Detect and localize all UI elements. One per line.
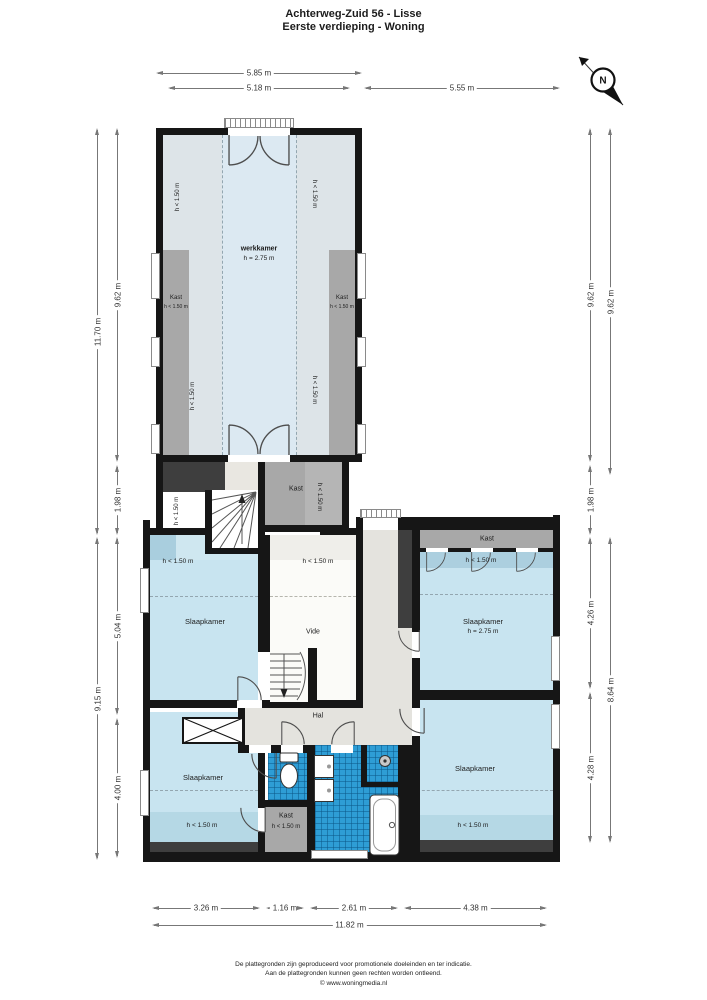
dimension-right-mid: 1.98 m (586, 465, 595, 535)
height-contour-line (420, 594, 553, 595)
door-arc (240, 807, 266, 833)
door-arc (228, 135, 259, 166)
room-label-werkkamer: werkkamer (241, 244, 278, 253)
dimension-left-total-upper: 11.70 m (93, 128, 102, 535)
low-height-label: h < 1.50 m (190, 382, 198, 411)
closet-label: Kast (336, 295, 348, 303)
window (311, 850, 368, 859)
dimension-bottom-seg1: 3.26 m (152, 904, 260, 913)
window (357, 253, 366, 299)
low-height-label: h < 1.50 m (314, 483, 322, 512)
low-height-label: h < 1.50 m (175, 183, 183, 212)
vide-low-strip (270, 535, 356, 560)
low-height-label: h < 1.50 m (330, 304, 354, 311)
disclaimer-line2: Aan de plattegronden kunnen geen rechten… (0, 969, 707, 978)
disclaimer: De plattegronden zijn geproduceerd voor … (0, 960, 707, 988)
height-contour-line (270, 596, 356, 597)
window (357, 337, 366, 367)
height-contour-line (412, 790, 553, 791)
door-arc (331, 721, 355, 745)
dimension-right-bed-top: 4.26 m (586, 537, 595, 689)
low-zone (163, 492, 205, 528)
door-arc (281, 721, 305, 745)
room-label-vide: Vide (306, 627, 320, 636)
door-arc (228, 424, 259, 455)
room-label-bedroom: Slaapkamer (463, 617, 503, 627)
low-height-label: h < 1.50 m (163, 558, 194, 566)
door-opening (363, 517, 398, 530)
stair-landing (225, 462, 258, 493)
dimension-left-wing: 9.62 m (113, 128, 122, 462)
window (551, 636, 560, 681)
copyright: © www.woningmedia.nl (0, 979, 707, 988)
door-arc (399, 708, 425, 734)
sink-icon (314, 755, 335, 803)
room-label-hall: Hal (313, 711, 324, 720)
door-opening (237, 700, 262, 708)
window (140, 770, 149, 816)
door-opening (249, 745, 271, 753)
room-label-bedroom: Slaapkamer (455, 764, 495, 774)
room-height-label: h = 2.75 m (468, 628, 499, 636)
low-height-label: h < 1.50 m (187, 822, 218, 830)
shower-head-icon (378, 754, 392, 768)
low-height-label: h < 1.50 m (458, 822, 489, 830)
dimension-top-right: 5.55 m (364, 84, 560, 93)
dimension-bottom-seg4: 4.38 m (404, 904, 547, 913)
wall (412, 658, 420, 708)
window (151, 253, 160, 299)
page-title: Achterweg-Zuid 56 - Lisse (0, 8, 707, 20)
door-arc (398, 630, 420, 652)
door-arc (251, 753, 277, 779)
closet-band-left (163, 250, 189, 455)
low-height-label: h < 1.50 m (466, 557, 497, 565)
room-label-bedroom: Slaapkamer (183, 773, 223, 783)
stairs-lower (270, 650, 308, 702)
wall (143, 528, 205, 535)
shower-partition (361, 745, 367, 787)
dimension-top-wing-outer: 5.85 m (156, 69, 362, 78)
wall (412, 690, 553, 700)
wall (205, 548, 265, 554)
dimension-right-bed-bottom: 4.28 m (586, 692, 595, 843)
window (357, 424, 366, 454)
dormer-window-icon (182, 717, 244, 744)
height-contour-line (296, 135, 297, 455)
dimension-bottom-seg3: 2.61 m (310, 904, 398, 913)
height-contour-line (222, 135, 223, 455)
wall (308, 648, 317, 704)
wall (205, 490, 212, 548)
door-opening (331, 745, 353, 753)
low-height-label: h < 1.50 m (303, 558, 334, 566)
dimension-bottom-total: 11.82 m (152, 921, 547, 930)
balcony-railing (224, 118, 294, 128)
dimension-right-wing-outer: 9.62 m (606, 128, 615, 475)
closet-label: Kast (289, 484, 303, 493)
shower-partition (361, 782, 398, 787)
wall (398, 745, 412, 852)
dark-low-zone (163, 462, 228, 492)
room-hall (245, 708, 412, 745)
compass-north-label: N (599, 76, 606, 87)
wall (553, 515, 560, 862)
low-height-label: h < 1.50 m (309, 376, 317, 405)
window (151, 424, 160, 454)
height-contour-line (150, 596, 258, 597)
dimension-right-wing-inner: 9.62 m (586, 128, 595, 462)
low-height-label: h < 1.50 m (164, 304, 188, 311)
bedroom-tl-corner-patch (150, 535, 176, 560)
closet-label: Kast (170, 295, 182, 303)
window (151, 337, 160, 367)
room-label-bedroom: Slaapkamer (185, 617, 225, 627)
wall (156, 128, 163, 535)
dimension-left-bed-bottom: 4.00 m (113, 718, 122, 858)
toilet-icon (277, 752, 301, 794)
dimension-left-bed-top: 5.04 m (113, 537, 122, 715)
page-subtitle: Eerste verdieping - Woning (0, 21, 707, 33)
window (140, 568, 149, 613)
door-arc (259, 424, 290, 455)
door-arc (259, 135, 290, 166)
room-height-label: h = 2.75 m (244, 255, 275, 263)
closet-door-arc (426, 552, 446, 572)
dimension-left-body: 9.15 m (93, 537, 102, 860)
wall (342, 455, 349, 535)
wall (258, 535, 270, 652)
closet-band-right (329, 250, 355, 455)
stairs-upper (212, 490, 258, 548)
wall (258, 800, 307, 807)
low-height-label: h < 1.50 m (174, 497, 182, 526)
dimension-left-mid: 1.98 m (113, 465, 122, 535)
closet-label: Kast (279, 811, 293, 820)
wall (412, 530, 420, 632)
wall (412, 736, 420, 852)
balcony-railing (360, 509, 401, 518)
floor-plan-page: Achterweg-Zuid 56 - Lisse Eerste verdiep… (0, 0, 707, 1000)
door-opening (228, 455, 290, 462)
closet-mid-light (305, 462, 342, 525)
wall (398, 517, 553, 530)
wall (356, 517, 363, 708)
dimension-bottom-seg2: 1.16 m (266, 904, 304, 913)
low-height-label: h < 1.50 m (309, 180, 317, 209)
disclaimer-line1: De plattegronden zijn geproduceerd voor … (0, 960, 707, 969)
dimension-top-wing-inner: 5.18 m (168, 84, 350, 93)
bathtub-icon (369, 794, 400, 856)
closet-label: Kast (480, 534, 494, 543)
closet-door-arc (516, 552, 536, 572)
compass-rose: N (573, 50, 629, 112)
wall (143, 700, 237, 708)
low-height-label: h < 1.50 m (272, 824, 301, 832)
window (551, 704, 560, 749)
door-arc (237, 676, 262, 701)
wall (258, 832, 265, 852)
corridor (363, 522, 398, 708)
height-contour-line (150, 790, 258, 791)
dimension-right-body: 8.64 m (606, 537, 615, 843)
